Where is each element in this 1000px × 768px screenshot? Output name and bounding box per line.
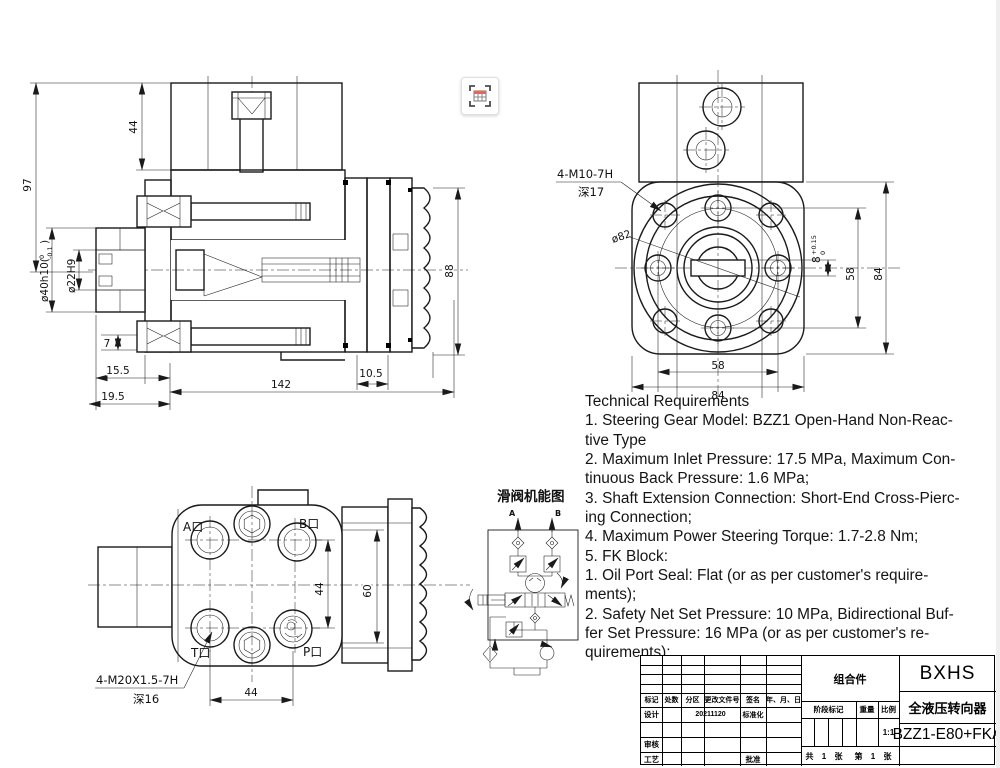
hydraulic-schematic: 滑阀机能图 A B xyxy=(470,488,579,675)
label-port-a: A口 xyxy=(183,520,203,534)
tb-design-date: 20211120 xyxy=(681,707,740,722)
svg-text:0: 0 xyxy=(819,251,827,255)
tb-header-zone: 分区 xyxy=(681,693,704,707)
tb-header-doc-no: 更改文件号 xyxy=(704,693,740,707)
dim-slot: 8 +0.15 0 xyxy=(810,235,827,263)
dim-15-5: 15.5 xyxy=(106,365,129,377)
svg-text:+0.15: +0.15 xyxy=(810,235,818,255)
dim-7: 7 xyxy=(104,338,111,350)
dim-shaft-dia: ø40h10( 0 -0.1 ) xyxy=(38,240,54,302)
schematic-port-a: A xyxy=(509,509,516,518)
svg-text:8: 8 xyxy=(811,256,823,263)
dim-142: 142 xyxy=(271,379,291,391)
tb-approve-label: 批准 xyxy=(740,752,766,766)
tb-header-count: 处数 xyxy=(662,693,681,707)
label-port-p: P口 xyxy=(303,645,322,659)
dim-section-height: 60 xyxy=(362,584,374,597)
table-capture-glyph xyxy=(467,83,493,109)
svg-text:-0.1: -0.1 xyxy=(46,246,54,259)
dim-flange-v: 84 xyxy=(873,267,885,281)
label-port-b: B口 xyxy=(299,517,319,531)
tb-header-signature: 签名 xyxy=(740,693,766,707)
tb-weight-label: 重量 xyxy=(856,701,878,718)
label-thread-note: 4-M20X1.5-7H xyxy=(96,673,178,687)
tb-product-name: 全液压转向器 xyxy=(899,691,996,723)
svg-text:): ) xyxy=(39,240,51,244)
label-bolt-note: 4-M10-7H xyxy=(557,167,613,181)
tech-requirements-body: 1. Steering Gear Model: BZZ1 Open-Hand N… xyxy=(585,411,999,662)
schematic-port-b: B xyxy=(555,509,561,518)
dim-port-cols: 44 xyxy=(244,687,258,699)
tb-header-mark: 标记 xyxy=(641,693,662,707)
tb-stage-label: 阶段标记 xyxy=(801,701,856,718)
label-port-t: T口 xyxy=(190,646,210,660)
tb-part-type: 组合件 xyxy=(801,656,899,701)
svg-text:ø82: ø82 xyxy=(610,228,633,246)
dim-88: 88 xyxy=(444,264,456,277)
title-block: 标记 处数 分区 更改文件号 签名 年、月、日 设计 20211120 标准化 … xyxy=(640,655,995,765)
tech-requirements-title: Technical Requirements xyxy=(585,392,999,411)
dim-bore-dia: ø22H9 xyxy=(66,259,78,293)
port-view: A口 B口 T口 P口 44 60 44 4-M20X1.5-7H 深16 xyxy=(88,486,470,706)
table-capture-icon[interactable] xyxy=(461,77,499,115)
page-edge xyxy=(996,0,1000,768)
svg-text:ø40h10(: ø40h10( xyxy=(39,258,51,302)
svg-text:0: 0 xyxy=(38,255,46,259)
schematic-title: 滑阀机能图 xyxy=(497,488,565,505)
tb-sheet-page: 第 1 张 xyxy=(850,746,899,766)
tb-scale-label: 比例 xyxy=(878,701,899,718)
tb-header-date: 年、月、日 xyxy=(766,693,801,707)
front-view: ø82 4-M10-7H 深17 58 84 8 +0.15 0 58 84 xyxy=(556,70,900,402)
dim-10-5: 10.5 xyxy=(359,368,382,380)
drawing-sheet: 97 44 ø40h10( 0 -0.1 ) ø22H9 7 15.5 19.5… xyxy=(0,0,1000,768)
technical-requirements: Technical Requirements 1. Steering Gear … xyxy=(585,392,999,663)
cross-section-view: 97 44 ø40h10( 0 -0.1 ) ø22H9 7 15.5 19.5… xyxy=(22,76,468,410)
dim-97: 97 xyxy=(22,178,34,191)
dim-hole-span-v: 58 xyxy=(845,267,857,280)
tb-design-label: 设计 xyxy=(641,707,662,722)
label-bolt-depth: 深17 xyxy=(578,185,604,199)
tb-company: BXHS xyxy=(899,656,996,691)
tb-sheet-total: 共 1 张 xyxy=(801,746,850,766)
dim-port-rows: 44 xyxy=(314,582,326,596)
tb-standardization-label: 标准化 xyxy=(740,707,766,722)
label-pitch-circle: ø82 xyxy=(610,228,633,246)
tb-review-label: 审核 xyxy=(641,737,662,752)
dim-44-block: 44 xyxy=(128,120,140,134)
tb-process-label: 工艺 xyxy=(641,752,662,766)
label-thread-depth: 深16 xyxy=(133,692,159,706)
dim-19-5: 19.5 xyxy=(101,391,124,403)
dim-hole-span-h: 58 xyxy=(711,360,724,372)
tb-model-number: BZZ1-E80+FKA xyxy=(899,723,996,746)
